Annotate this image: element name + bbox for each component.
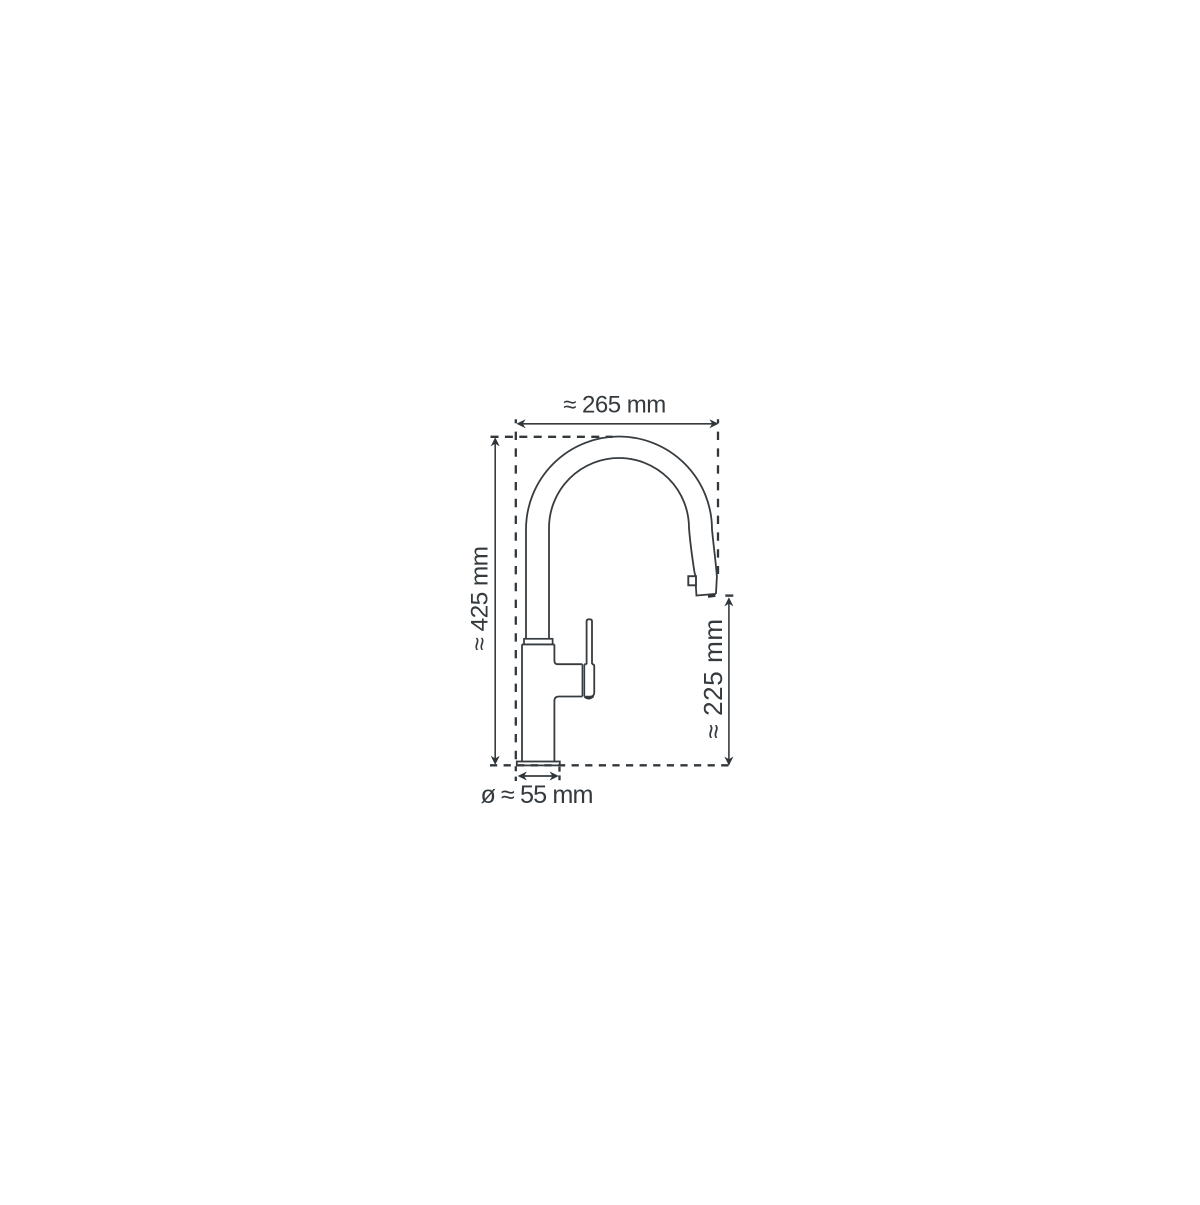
svg-text:≈ 265 mm: ≈ 265 mm <box>563 392 666 419</box>
svg-text:ø ≈ 55 mm: ø ≈ 55 mm <box>480 781 592 809</box>
svg-text:≈ 425 mm: ≈ 425 mm <box>467 547 494 651</box>
svg-text:≈ 225 mm: ≈ 225 mm <box>698 618 728 738</box>
